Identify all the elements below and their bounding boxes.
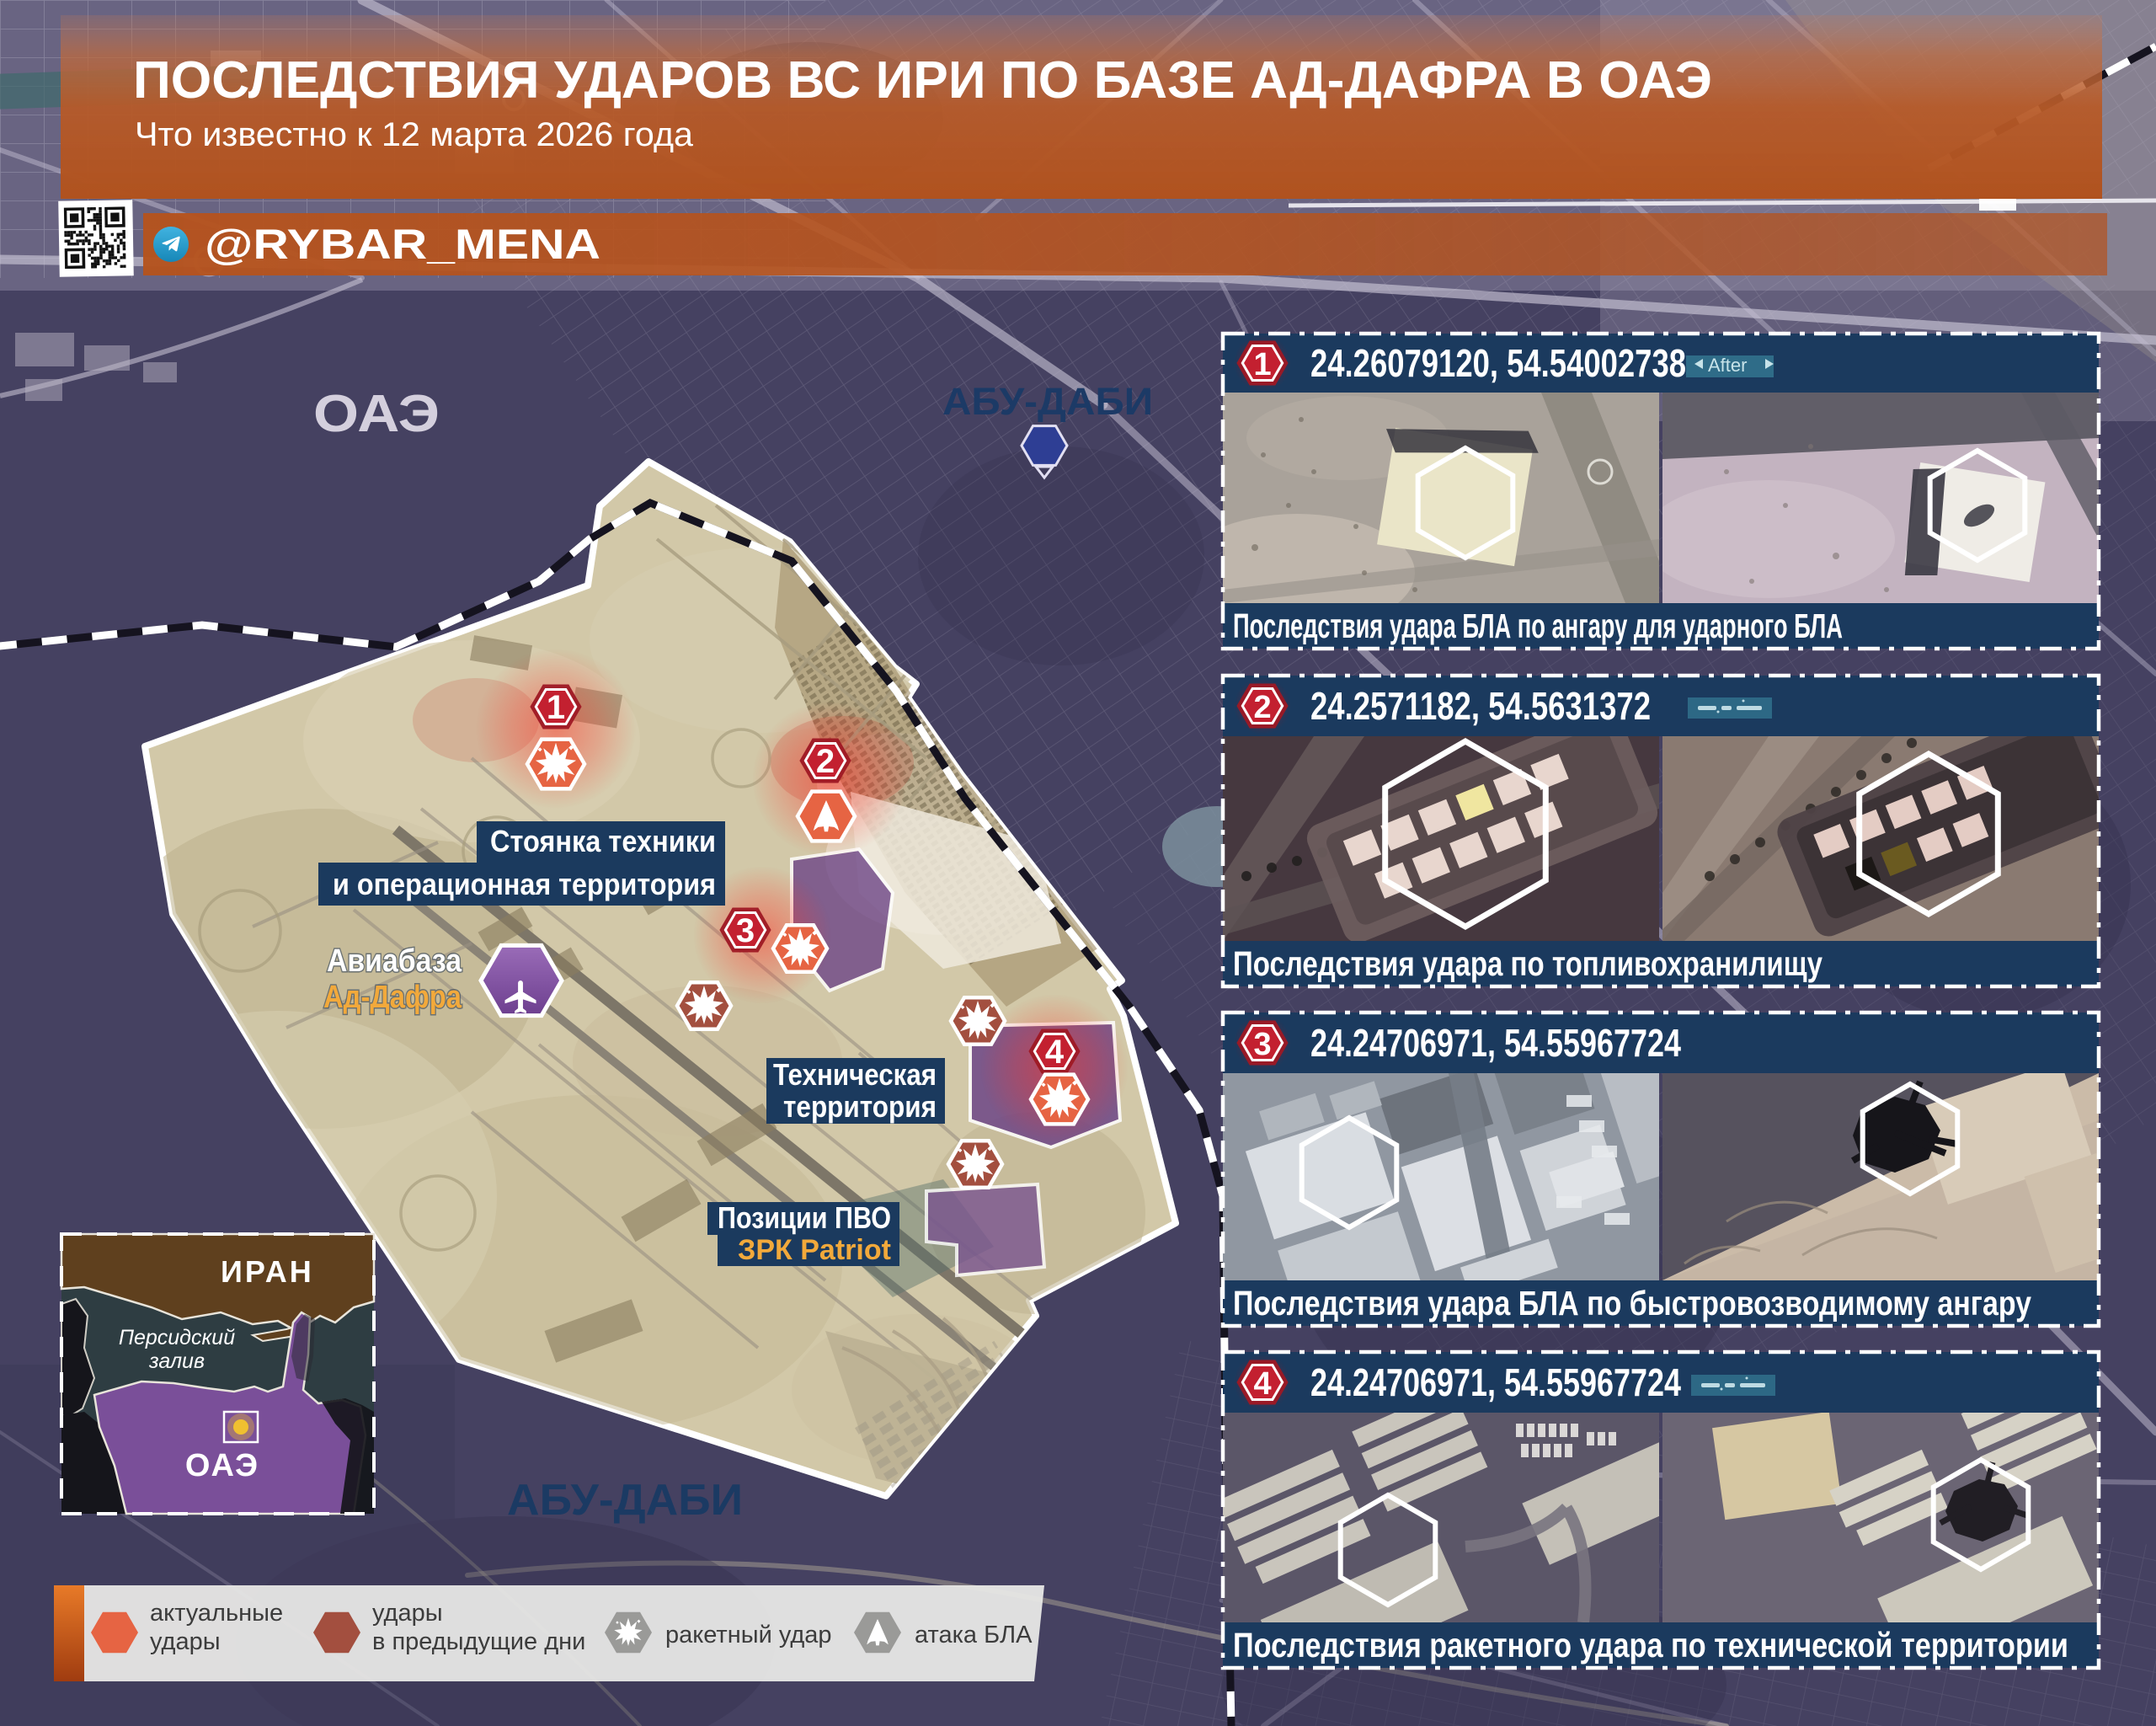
svg-text:АБУ-ДАБИ: АБУ-ДАБИ — [942, 380, 1153, 423]
svg-text:24.24706971, 54.55967724: 24.24706971, 54.55967724 — [1310, 1021, 1681, 1065]
svg-text:Последствия ракетного удара по: Последствия ракетного удара по техническ… — [1233, 1626, 2068, 1665]
svg-text:Авиабаза: Авиабаза — [327, 943, 462, 979]
svg-text:1: 1 — [1253, 347, 1271, 382]
svg-text:ЗРК Patriot: ЗРК Patriot — [738, 1234, 891, 1266]
svg-text:3: 3 — [1253, 1027, 1271, 1062]
svg-text:Последствия удара БЛА по быстр: Последствия удара БЛА по быстровозводимо… — [1233, 1284, 2031, 1323]
svg-text:территория: территория — [783, 1089, 937, 1124]
svg-text:АБУ-ДАБИ: АБУ-ДАБИ — [507, 1476, 743, 1525]
svg-text:@RYBAR_MENA: @RYBAR_MENA — [205, 221, 600, 268]
svg-text:Что известно к 12 марта 2026 г: Что известно к 12 марта 2026 года — [135, 116, 694, 153]
svg-text:Последствия удара по топливохр: Последствия удара по топливохранилищу — [1233, 944, 1822, 983]
svg-text:атака БЛА: атака БЛА — [915, 1622, 1033, 1649]
svg-text:24.24706971, 54.55967724: 24.24706971, 54.55967724 — [1310, 1360, 1681, 1404]
svg-text:Стоянка техники: Стоянка техники — [490, 824, 716, 858]
svg-text:залив: залив — [148, 1349, 205, 1373]
svg-text:Ад-Дафра: Ад-Дафра — [323, 980, 462, 1015]
svg-text:ОАЭ: ОАЭ — [313, 385, 440, 443]
svg-text:ИРАН: ИРАН — [221, 1254, 314, 1289]
svg-text:Позиции ПВО: Позиции ПВО — [718, 1200, 891, 1235]
svg-text:ПОСЛЕДСТВИЯ УДАРОВ ВС ИРИ ПО Б: ПОСЛЕДСТВИЯ УДАРОВ ВС ИРИ ПО БАЗЕ АД-ДАФ… — [133, 51, 1712, 110]
svg-text:4: 4 — [1045, 1034, 1065, 1071]
svg-text:ОАЭ: ОАЭ — [185, 1448, 259, 1483]
svg-text:в предыдущие дни: в предыдущие дни — [372, 1628, 585, 1655]
svg-text:удары: удары — [372, 1600, 443, 1627]
svg-text:24.26079120, 54.54002738: 24.26079120, 54.54002738 — [1310, 341, 1686, 385]
svg-text:3: 3 — [736, 912, 755, 949]
svg-text:4: 4 — [1253, 1366, 1271, 1402]
svg-text:Персидский: Персидский — [119, 1326, 235, 1349]
svg-text:2: 2 — [1253, 690, 1271, 725]
svg-text:Последствия удара БЛА по ангар: Последствия удара БЛА по ангару для удар… — [1233, 607, 1843, 645]
svg-text:ракетный удар: ракетный удар — [665, 1622, 832, 1649]
svg-text:24.2571182, 54.5631372: 24.2571182, 54.5631372 — [1310, 684, 1651, 728]
svg-text:Техническая: Техническая — [773, 1057, 937, 1092]
svg-text:и операционная территория: и операционная территория — [333, 867, 716, 901]
svg-text:2: 2 — [816, 743, 835, 780]
svg-text:актуальные: актуальные — [150, 1600, 283, 1627]
svg-text:After: After — [1708, 355, 1747, 376]
svg-text:1: 1 — [547, 689, 565, 726]
svg-text:удары: удары — [150, 1628, 221, 1655]
